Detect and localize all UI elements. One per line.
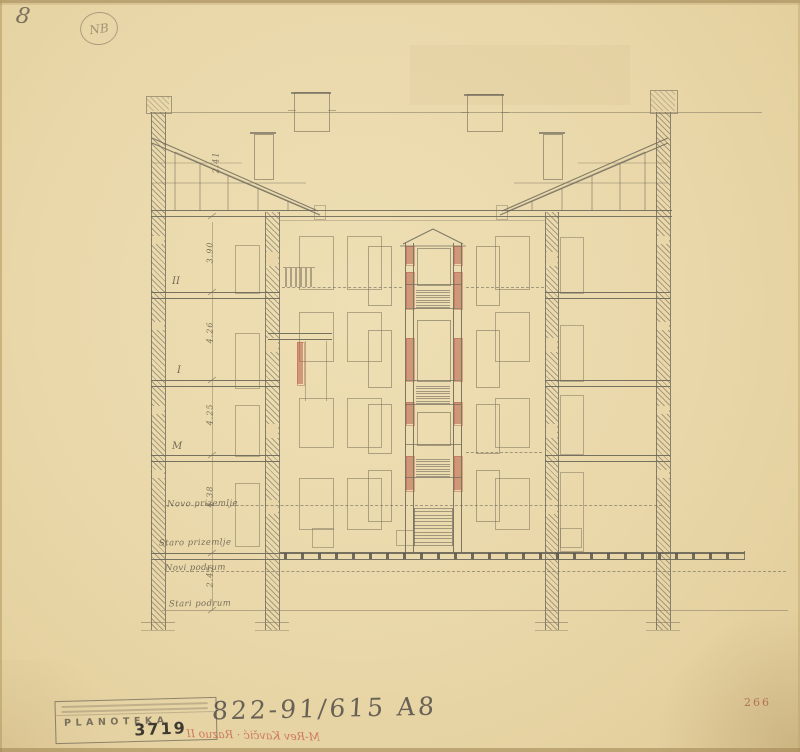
dimension-floor2: 3.90 (205, 242, 214, 264)
level-label-stari-podrum: Stari podrum (169, 599, 231, 610)
catalogue-code: 822-91/615 A8 (211, 692, 438, 726)
truss-line (175, 152, 312, 211)
level-label-novo-prizemlje: Novo prizemlje (167, 499, 238, 510)
truss-line (208, 289, 216, 295)
floor-label-i: I (177, 365, 181, 376)
truss-line (208, 377, 216, 383)
archive-number: 266 (744, 696, 771, 709)
truss-line (508, 152, 645, 211)
truss-line (403, 229, 433, 244)
roof-truss-lines (0, 0, 800, 752)
dimension-attic: 2.41 (211, 152, 220, 174)
floor-label-ii: II (172, 276, 180, 287)
dimension-mezzanine: 4.25 (205, 404, 214, 426)
truss-line (152, 138, 318, 211)
level-label-staro-prizemlje: Staro prizemlje (159, 537, 232, 548)
truss-line (502, 138, 668, 211)
truss-line (208, 452, 216, 458)
level-label-novi-podrum: Novi podrum (165, 563, 226, 574)
truss-line (152, 143, 320, 215)
dimension-floor1: 4.26 (205, 322, 214, 344)
drawing-sheet: 8 NB II I M 2.41 3.90 4.26 4.25 4.38 2.4… (0, 0, 800, 752)
truss-line (208, 213, 216, 219)
truss-line (208, 550, 216, 556)
circled-stamp-text: NB (88, 20, 109, 37)
truss-line (500, 143, 668, 215)
floor-label-m: M (172, 441, 182, 452)
truss-line (433, 229, 463, 244)
